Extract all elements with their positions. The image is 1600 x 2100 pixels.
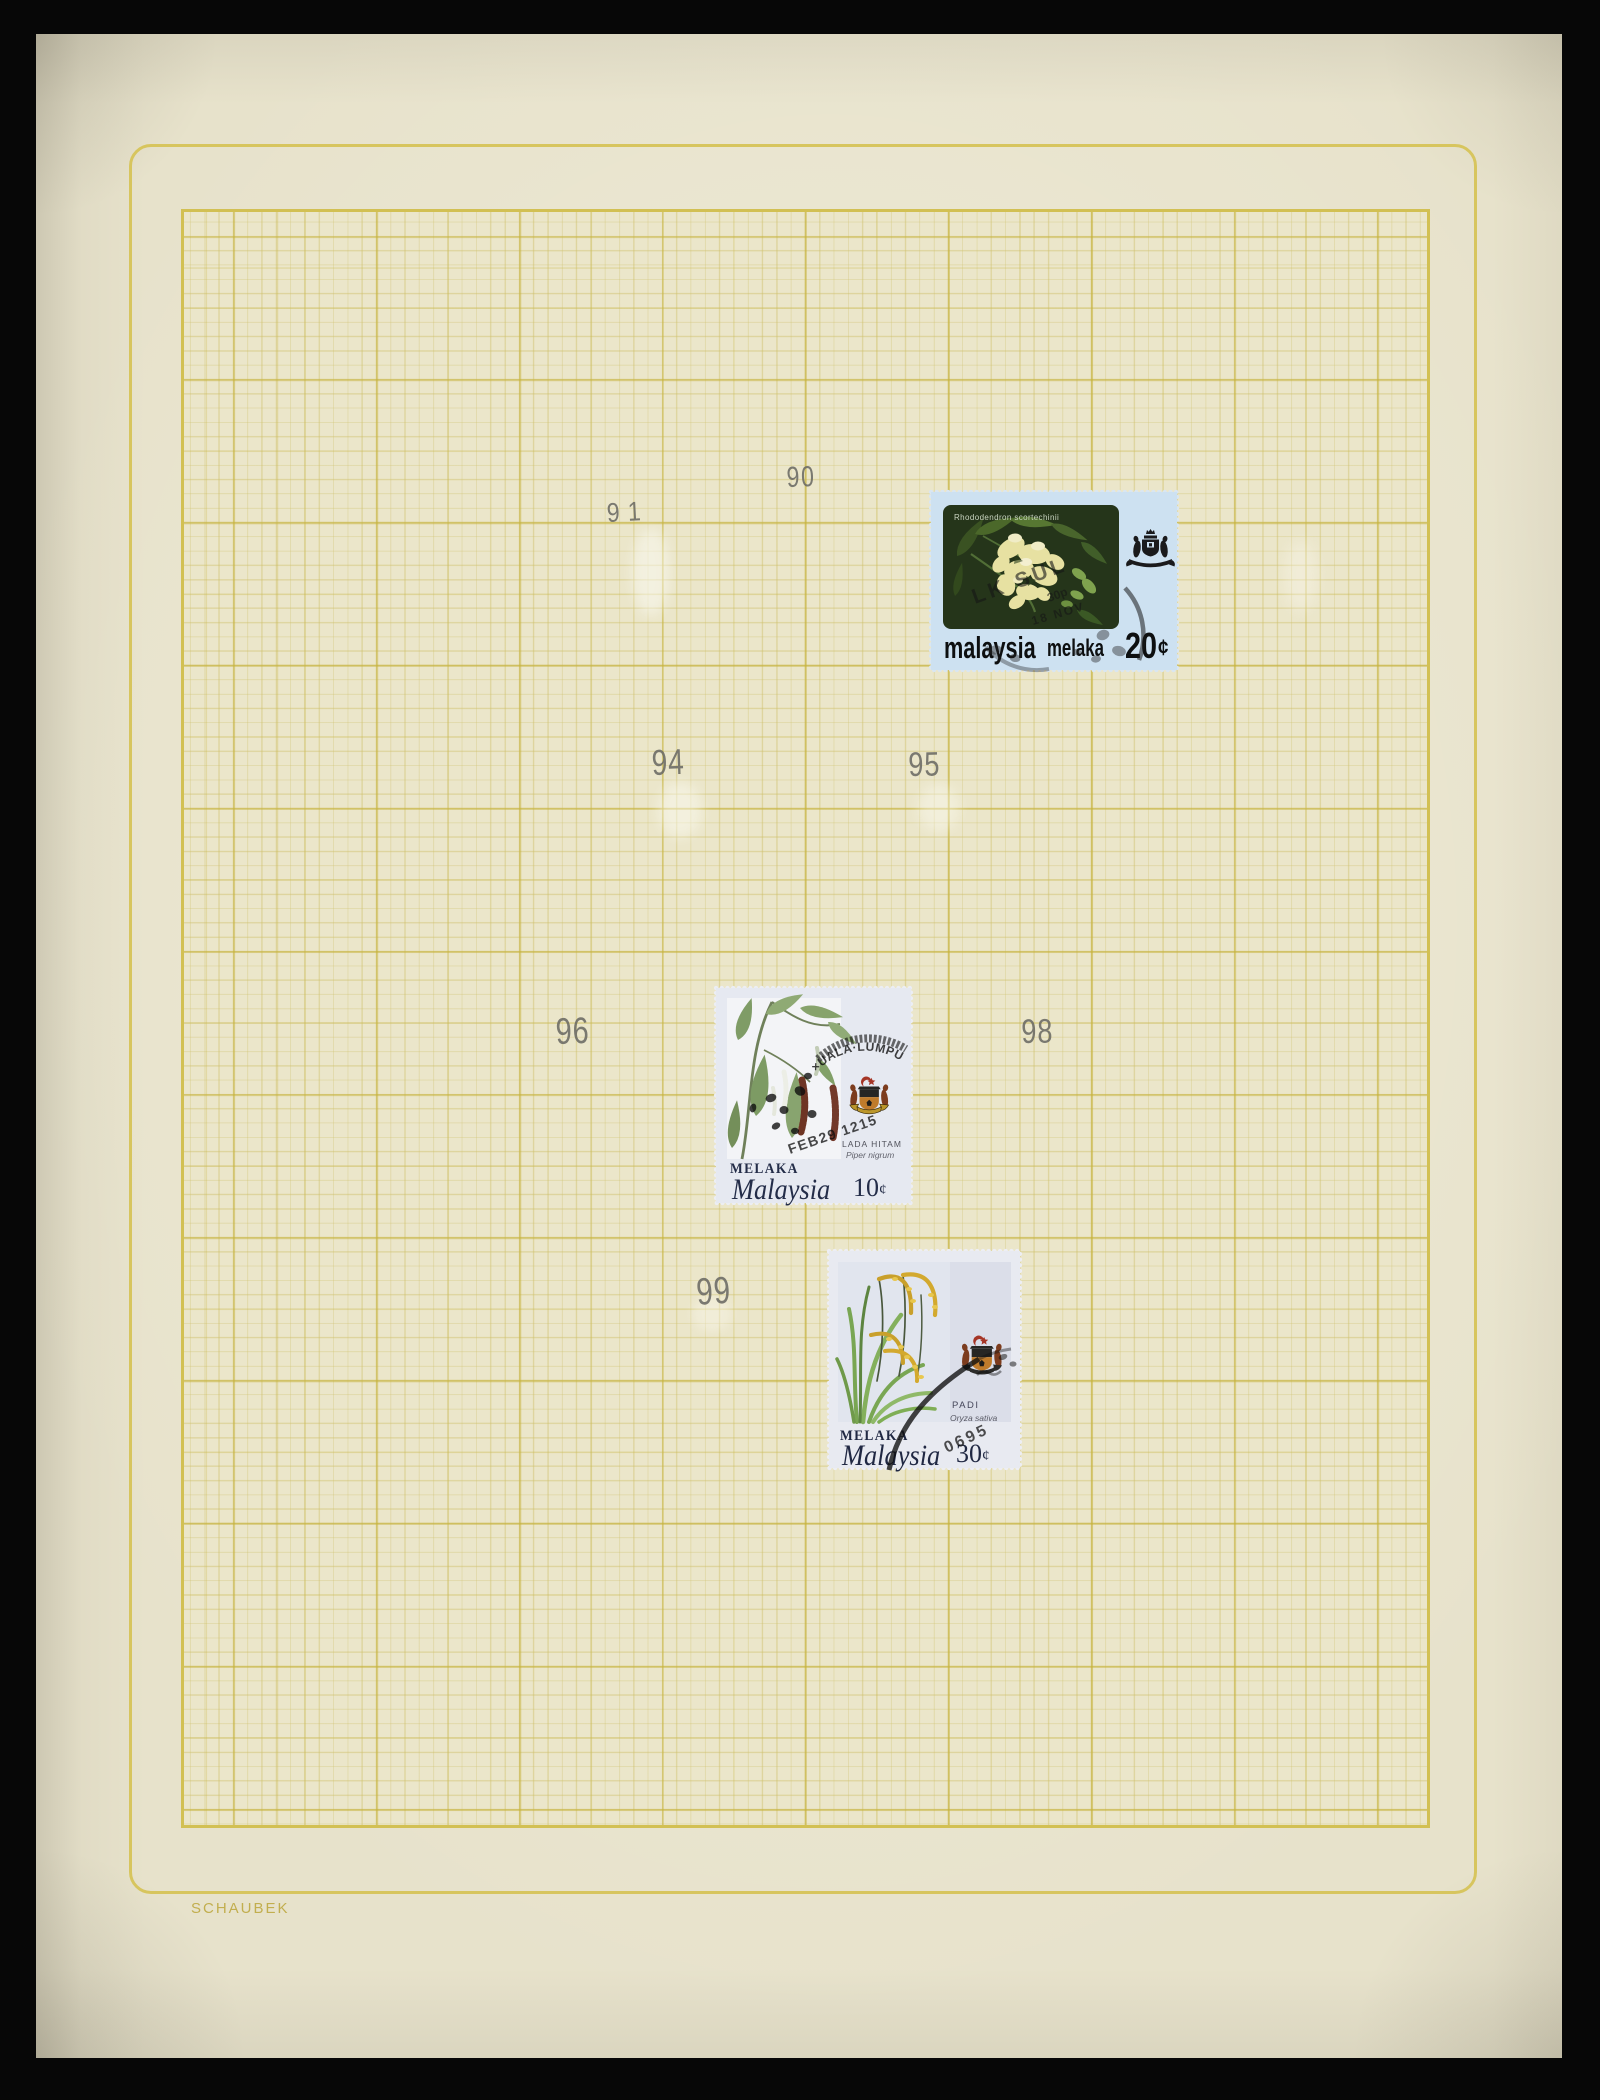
svg-text:LADA HITAM: LADA HITAM: [842, 1139, 902, 1149]
svg-text:¢: ¢: [1158, 637, 1168, 661]
svg-text:Oryza sativa: Oryza sativa: [950, 1413, 998, 1423]
svg-text:Piper nigrum: Piper nigrum: [846, 1150, 894, 1160]
svg-text:Rhododendron scortechinii: Rhododendron scortechinii: [954, 513, 1059, 522]
svg-text:¢: ¢: [982, 1448, 990, 1464]
svg-text:10: 10: [853, 1173, 879, 1202]
svg-text:¢: ¢: [879, 1182, 887, 1198]
svg-text:Malaysia: Malaysia: [731, 1174, 830, 1207]
svg-text:PADI: PADI: [952, 1400, 979, 1411]
